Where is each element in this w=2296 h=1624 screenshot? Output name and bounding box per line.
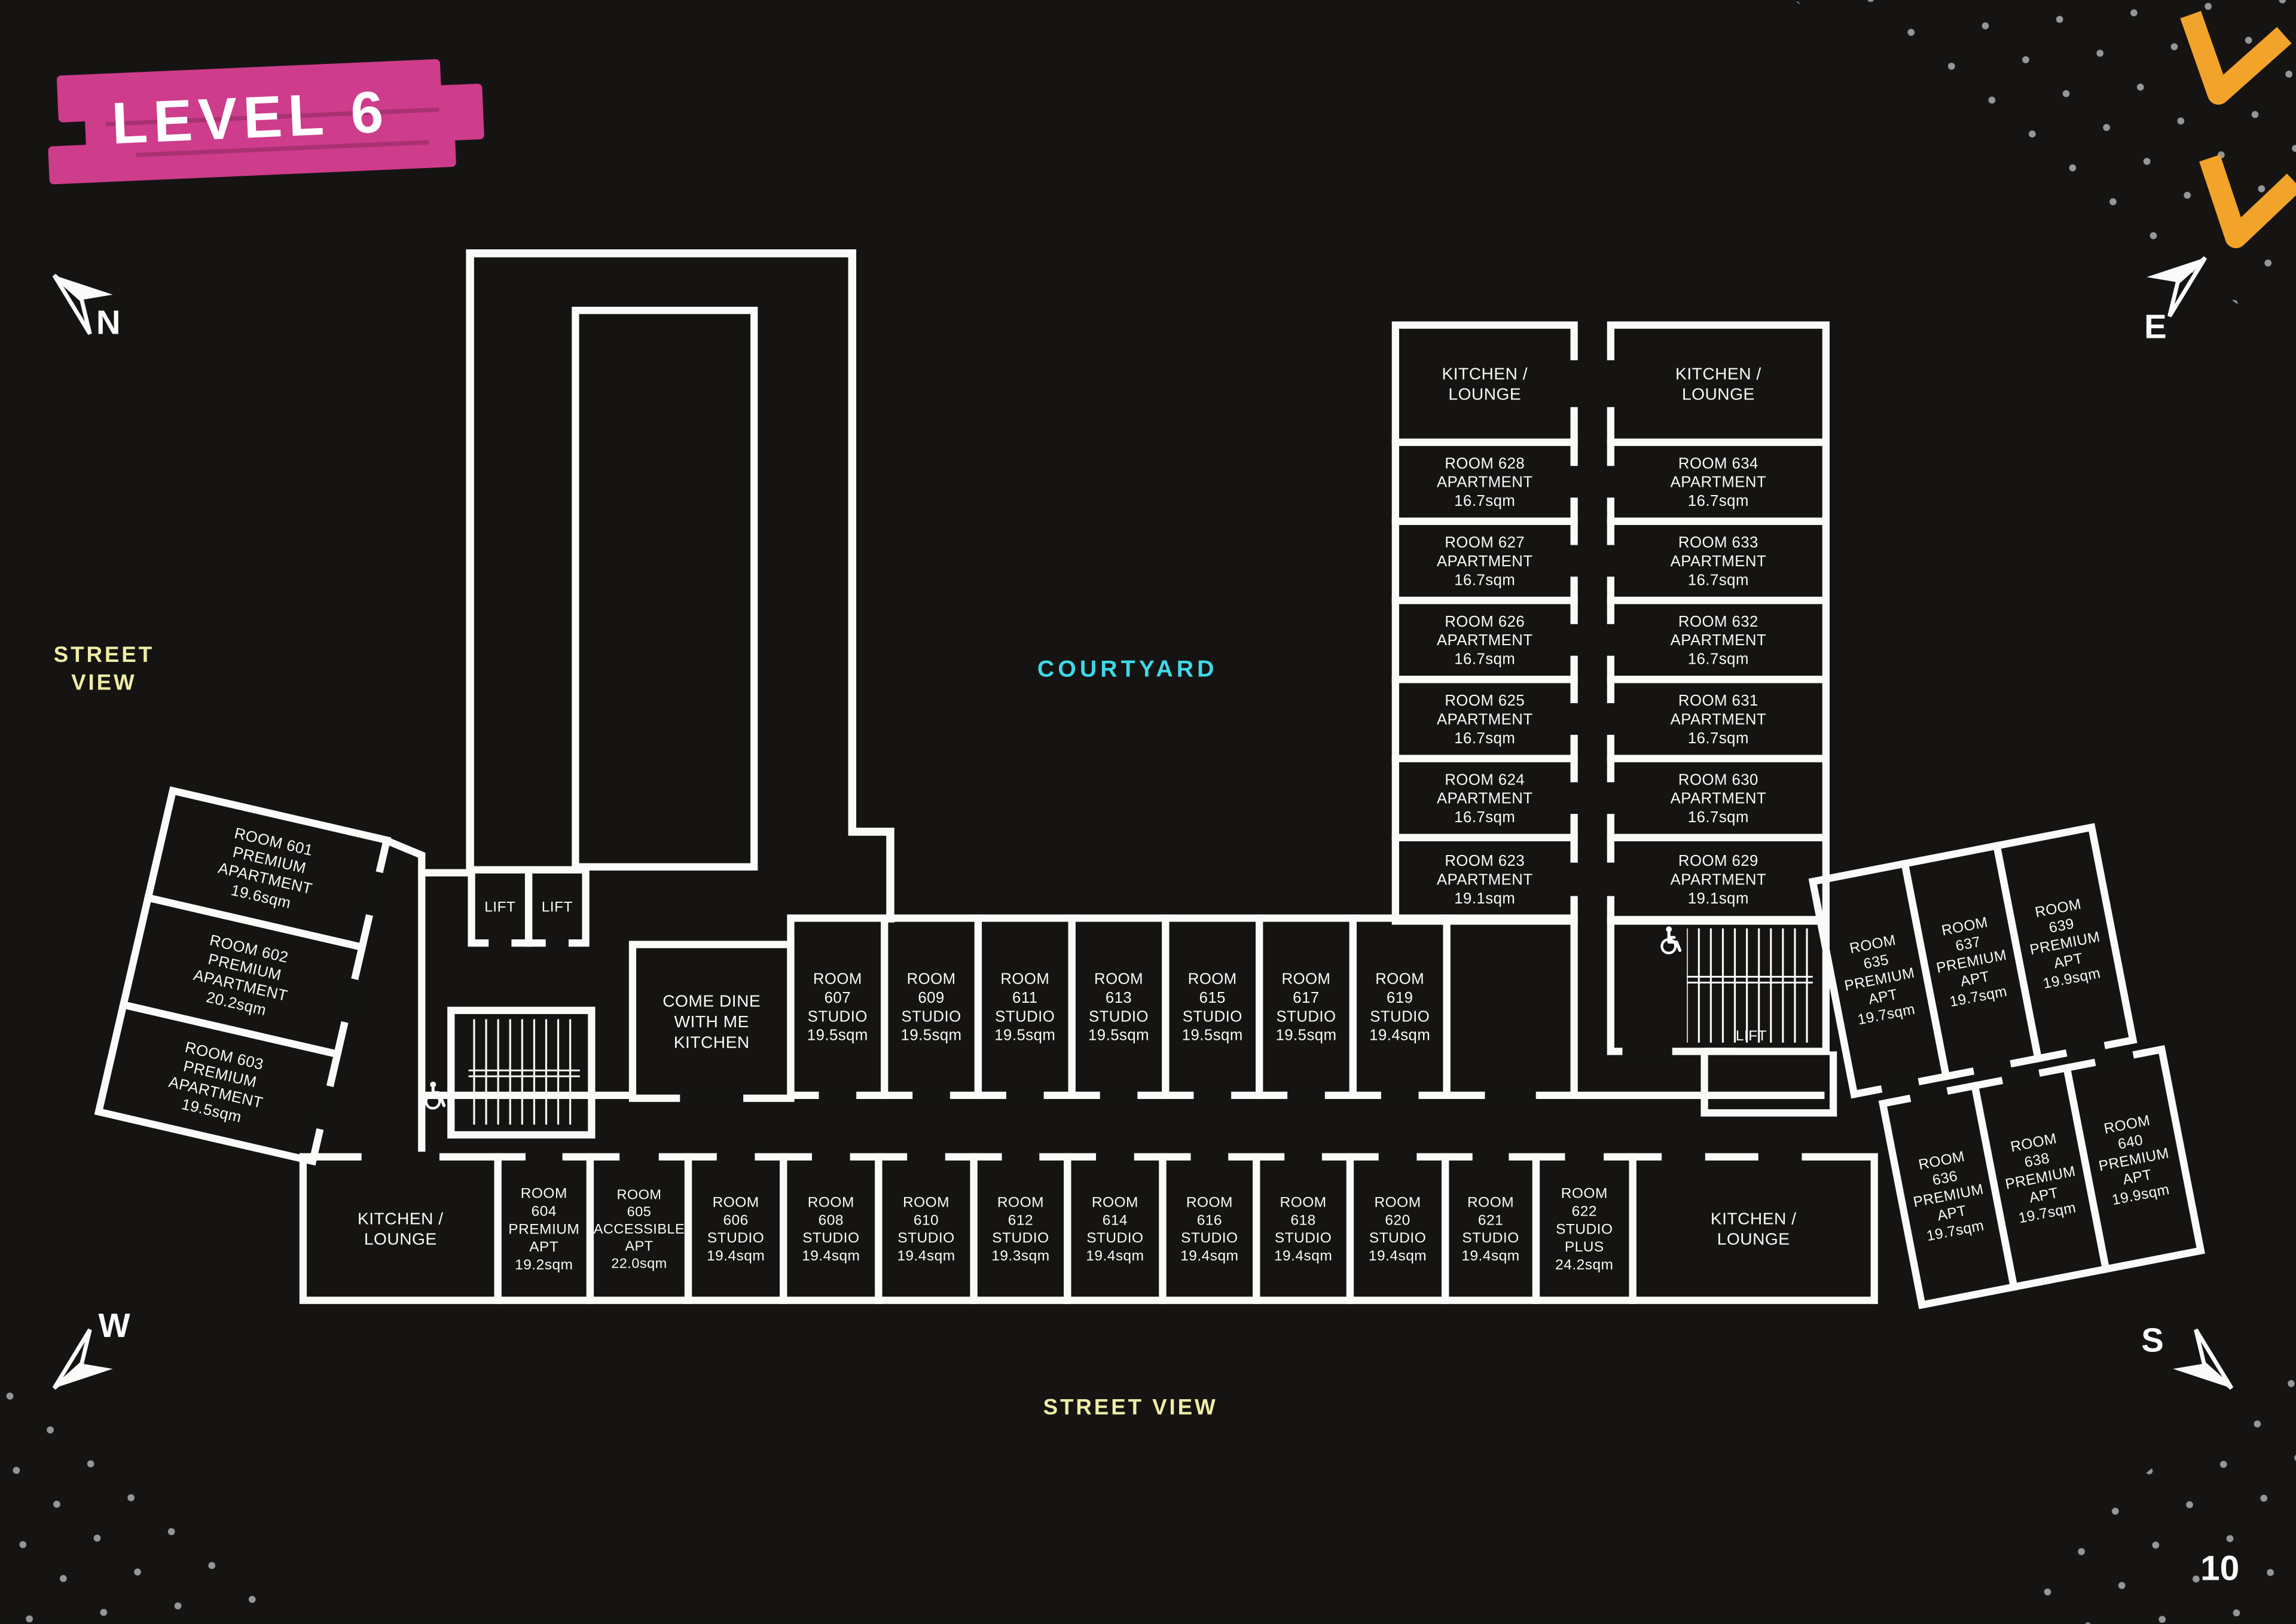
- room-618-outline: [1256, 1157, 1350, 1301]
- room-633-door: [1605, 545, 1616, 577]
- room-633-label: ROOM 633APARTMENT16.7sqm: [1671, 535, 1767, 589]
- room-635-label: ROOM635PREMIUMAPT19.7sqm: [1836, 930, 1923, 1030]
- courtyard-label: COURTYARD: [1037, 656, 1218, 682]
- room-626-door: [1569, 624, 1579, 656]
- lift-a-label: LIFT: [484, 899, 515, 915]
- room-636-label: ROOM636PREMIUMAPT19.7sqm: [1905, 1146, 1992, 1246]
- room-623-label: ROOM 623APARTMENT19.1sqm: [1437, 853, 1533, 907]
- room-616-outline: [1162, 1157, 1256, 1301]
- room-621-outline: [1445, 1157, 1536, 1301]
- room-612-door: [1002, 1152, 1040, 1162]
- room-609-label: ROOM609STUDIO19.5sqm: [901, 971, 962, 1044]
- room-602-door: [340, 978, 359, 1023]
- room-639-door: [2066, 1040, 2106, 1058]
- room-629-door: [1605, 863, 1616, 896]
- room-607-door: [819, 1090, 856, 1100]
- street-view-left-label-line1: STREET: [54, 642, 154, 667]
- room-604-label: ROOM604PREMIUMAPT19.2sqm: [508, 1186, 579, 1274]
- lift-a-door: [488, 938, 511, 948]
- room-mid-unlabeled-door: [1485, 1090, 1536, 1100]
- room-637-label: ROOM637PREMIUMAPT19.7sqm: [1928, 912, 2015, 1012]
- room-615-label: ROOM615STUDIO19.5sqm: [1182, 971, 1243, 1044]
- room-632-door: [1605, 624, 1616, 656]
- kitchen-lounge-sw-outline: [303, 1157, 498, 1301]
- room-609-door: [912, 1090, 950, 1100]
- room-613-outline: [1072, 918, 1166, 1095]
- room-608-outline: [783, 1157, 878, 1301]
- room-616-door: [1191, 1152, 1229, 1162]
- room-608-label: ROOM608STUDIO19.4sqm: [802, 1194, 860, 1264]
- room-613-door: [1100, 1090, 1138, 1100]
- room-622-label: ROOM622STUDIOPLUS24.2sqm: [1555, 1186, 1613, 1274]
- room-605-label: ROOM605ACCESSIBLEAPT22.0sqm: [594, 1187, 685, 1271]
- room-635-door: [1881, 1077, 1920, 1094]
- room-631-door: [1605, 703, 1616, 735]
- room-631-label: ROOM 631APARTMENT16.7sqm: [1671, 692, 1767, 747]
- compass-west-label: W: [98, 1306, 130, 1344]
- lift-b-door: [546, 938, 569, 948]
- compass-north: N: [54, 275, 121, 341]
- u-block-inner-wall: [575, 310, 754, 867]
- room-626-label: ROOM 626APARTMENT16.7sqm: [1437, 613, 1533, 668]
- room-622-door: [1565, 1152, 1604, 1162]
- room-612-outline: [974, 1157, 1068, 1301]
- room-621-door: [1473, 1152, 1509, 1162]
- room-610-outline: [878, 1157, 973, 1301]
- room-617-outline: [1259, 918, 1353, 1095]
- kitchen-lounge-se-label: KITCHEN /LOUNGE: [1711, 1209, 1797, 1248]
- kitchen-lounge-ne-left-door: [1569, 360, 1579, 407]
- room-606-label: ROOM606STUDIO19.4sqm: [707, 1194, 765, 1264]
- room-614-outline: [1067, 1157, 1162, 1301]
- room-637-door: [1973, 1059, 2011, 1076]
- room-601-label: ROOM 601PREMIUMAPARTMENT19.6sqm: [212, 823, 322, 916]
- room-640-label: ROOM640PREMIUMAPT19.9sqm: [2091, 1110, 2178, 1210]
- compass-south-label: S: [2141, 1321, 2164, 1359]
- come-dine-kitchen-door: [680, 1093, 743, 1103]
- room-628-label: ROOM 628APARTMENT16.7sqm: [1437, 455, 1533, 509]
- stairs-right-door: [1622, 1046, 1672, 1057]
- room-620-label: ROOM620STUDIO19.4sqm: [1369, 1194, 1427, 1264]
- come-dine-kitchen-label: COME DINEWITH MEKITCHEN: [662, 992, 761, 1052]
- room-607-outline: [790, 918, 884, 1095]
- wheelchair-icon: [1662, 926, 1680, 953]
- room-628-door: [1569, 466, 1579, 497]
- room-621-label: ROOM621STUDIO19.4sqm: [1461, 1194, 1519, 1264]
- compass-north-label: N: [96, 303, 121, 341]
- room-603-outline: [99, 1005, 337, 1161]
- lift-b-label: LIFT: [542, 899, 573, 915]
- room-619-outline: [1353, 918, 1447, 1095]
- room-630-label: ROOM 630APARTMENT16.7sqm: [1671, 771, 1767, 826]
- lift-right-label-label: LIFT: [1736, 1028, 1767, 1044]
- compass-east-label: E: [2144, 308, 2167, 346]
- room-616-label: ROOM616STUDIO19.4sqm: [1180, 1194, 1238, 1264]
- street-view-bottom-label: STREET VIEW: [1043, 1395, 1218, 1420]
- room-618-door: [1284, 1152, 1322, 1162]
- room-632-label: ROOM 632APARTMENT16.7sqm: [1671, 613, 1767, 668]
- room-613-label: ROOM613STUDIO19.5sqm: [1088, 971, 1149, 1044]
- kitchen-lounge-se-door: [1758, 1152, 1802, 1162]
- room-609-outline: [884, 918, 978, 1095]
- room-611-door: [1006, 1090, 1044, 1100]
- room-614-door: [1096, 1152, 1134, 1162]
- room-603-label: ROOM 603PREMIUMAPARTMENT19.5sqm: [163, 1037, 273, 1130]
- room-639-label: ROOM639PREMIUMAPT19.9sqm: [2022, 894, 2108, 994]
- room-610-label: ROOM610STUDIO19.4sqm: [897, 1194, 955, 1264]
- level-badge-label: LEVEL 6: [111, 78, 390, 156]
- dots-texture-bottom-right: [1955, 1354, 2296, 1624]
- stairs-left-treads: [469, 1019, 580, 1124]
- room-620-door: [1379, 1152, 1417, 1162]
- main-rooms-group: KITCHEN /LOUNGEKITCHEN /LOUNGEROOM 628AP…: [303, 325, 1874, 1301]
- room-627-label: ROOM 627APARTMENT16.7sqm: [1437, 535, 1533, 589]
- stairs-right-treads: [1687, 929, 1813, 1043]
- lift-shaft-right: [1705, 1051, 1834, 1113]
- room-638-label: ROOM638PREMIUMAPT19.7sqm: [1997, 1128, 2084, 1228]
- room-638-door: [2001, 1068, 2040, 1085]
- left-wing-rooms-group: ROOM 601PREMIUMAPARTMENT19.6sqmROOM 602P…: [99, 790, 392, 1162]
- room-mid-unlabeled-outline: [1447, 918, 1574, 1095]
- floor-plan-svg: LEVEL 6 N E W S STREET VIEW STREET VIEW …: [0, 0, 2296, 1624]
- kitchen-lounge-ne-left-outline: [1396, 325, 1574, 442]
- room-619-door: [1381, 1090, 1419, 1100]
- room-606-door: [717, 1152, 755, 1162]
- room-630-door: [1605, 782, 1616, 814]
- street-view-left-label-line2: VIEW: [71, 670, 137, 694]
- compass-east: E: [2144, 258, 2205, 346]
- room-615-door: [1193, 1090, 1231, 1100]
- dots-texture-bottom-left: [0, 1369, 329, 1624]
- kitchen-lounge-ne-right-label: KITCHEN /LOUNGE: [1675, 364, 1761, 403]
- compass-south-arrow-icon: [2173, 1330, 2231, 1388]
- room-624-door: [1569, 782, 1579, 814]
- room-625-label: ROOM 625APARTMENT16.7sqm: [1437, 692, 1533, 747]
- room-604-door: [526, 1152, 563, 1162]
- room-620-outline: [1350, 1157, 1445, 1301]
- room-607-label: ROOM607STUDIO19.5sqm: [807, 971, 868, 1044]
- u-block-outer-wall: [470, 254, 890, 923]
- kitchen-lounge-se-outline: [1633, 1157, 1874, 1301]
- room-614-label: ROOM614STUDIO19.4sqm: [1086, 1194, 1144, 1264]
- page-number: 10: [2200, 1549, 2239, 1588]
- room-617-label: ROOM617STUDIO19.5sqm: [1275, 971, 1336, 1044]
- room-624-label: ROOM 624APARTMENT16.7sqm: [1437, 771, 1533, 826]
- room-634-label: ROOM 634APARTMENT16.7sqm: [1671, 455, 1767, 509]
- room-619-label: ROOM619STUDIO19.4sqm: [1369, 971, 1430, 1044]
- kitchen-lounge-se-door: [1662, 1152, 1705, 1162]
- room-636-door: [1909, 1086, 1948, 1103]
- room-640-door: [2095, 1050, 2135, 1067]
- room-615-outline: [1165, 918, 1259, 1095]
- room-618-label: ROOM618STUDIO19.4sqm: [1274, 1194, 1332, 1264]
- kitchen-lounge-ne-left-label: KITCHEN /LOUNGE: [1442, 364, 1528, 403]
- room-623-door: [1569, 863, 1579, 896]
- room-605-door: [619, 1152, 659, 1162]
- connector-wall: [387, 841, 422, 873]
- room-629-label: ROOM 629APARTMENT19.1sqm: [1671, 853, 1767, 907]
- room-610-door: [907, 1152, 945, 1162]
- room-611-outline: [978, 918, 1072, 1095]
- compass-west: W: [54, 1306, 131, 1388]
- room-608-door: [812, 1152, 850, 1162]
- room-617-door: [1287, 1090, 1325, 1100]
- room-612-label: ROOM612STUDIO19.3sqm: [991, 1194, 1049, 1264]
- room-627-door: [1569, 545, 1579, 577]
- room-611-label: ROOM611STUDIO19.5sqm: [994, 971, 1055, 1044]
- room-602-label: ROOM 602PREMIUMAPARTMENT20.2sqm: [188, 930, 298, 1023]
- kitchen-lounge-ne-right-outline: [1611, 325, 1826, 442]
- level-badge: LEVEL 6: [45, 57, 486, 185]
- kitchen-lounge-sw-label: KITCHEN /LOUNGE: [358, 1209, 444, 1248]
- floor-plan-page: LEVEL 6 N E W S STREET VIEW STREET VIEW …: [0, 0, 2296, 1624]
- kitchen-lounge-ne-right-door: [1605, 360, 1616, 407]
- room-606-outline: [688, 1157, 783, 1301]
- room-603-door: [315, 1085, 335, 1130]
- room-601-door: [365, 871, 384, 916]
- compass-south: S: [2141, 1321, 2231, 1388]
- kitchen-lounge-sw-door: [362, 1152, 439, 1162]
- room-634-door: [1605, 466, 1616, 497]
- room-625-door: [1569, 703, 1579, 735]
